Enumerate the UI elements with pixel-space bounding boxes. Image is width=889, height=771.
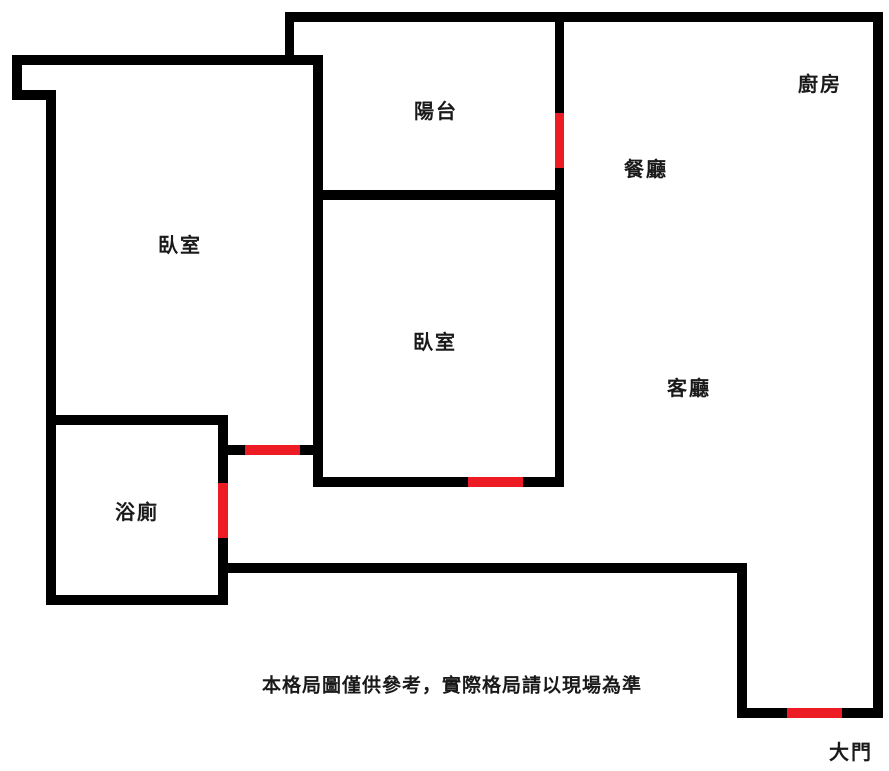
wall-bedrooms-divider <box>313 55 323 487</box>
door-balcony <box>555 113 564 168</box>
label-dining: 餐廳 <box>624 159 668 179</box>
disclaimer-text: 本格局圖僅供參考，實際格局請以現場為準 <box>262 677 642 696</box>
label-kitchen: 廚房 <box>798 74 842 94</box>
door-main-entrance <box>787 708 842 718</box>
wall-bedroom-middle-bottom-left <box>313 477 468 487</box>
label-balcony: 陽台 <box>414 101 458 121</box>
wall-bathroom-top <box>46 415 228 425</box>
label-bedroom-middle: 臥室 <box>413 332 457 352</box>
wall-bedroom-middle-bottom-right <box>523 477 564 487</box>
label-bathroom: 浴廁 <box>115 502 159 522</box>
wall-bathroom-bottom <box>46 595 228 605</box>
wall-living-bottom <box>218 563 747 573</box>
wall-balcony-bottom <box>313 190 563 200</box>
label-bedroom-left: 臥室 <box>158 235 202 255</box>
door-bedroom-middle <box>468 477 523 487</box>
wall-balcony-right-upper <box>555 22 564 113</box>
label-living: 客廳 <box>667 378 711 398</box>
door-bedroom-left <box>245 445 300 455</box>
wall-entry-bottom-right <box>842 708 883 718</box>
wall-outer-right <box>873 12 883 718</box>
wall-entry-left <box>737 563 747 718</box>
wall-bathroom-right-upper <box>218 415 228 483</box>
wall-bedroom-left-top <box>12 55 323 65</box>
wall-outer-top <box>285 12 883 22</box>
wall-outer-left-lower <box>46 90 56 605</box>
label-main-entrance: 大門 <box>829 742 873 762</box>
door-bathroom <box>218 483 228 538</box>
floor-plan: 陽台 廚房 餐廳 臥室 臥室 客廳 浴廁 大門 本格局圖僅供參考，實際格局請以現… <box>0 0 889 771</box>
wall-bedroom-left-doorway-right <box>300 445 313 455</box>
wall-entry-bottom-left <box>737 708 787 718</box>
wall-bedroom-middle-right <box>555 168 564 487</box>
